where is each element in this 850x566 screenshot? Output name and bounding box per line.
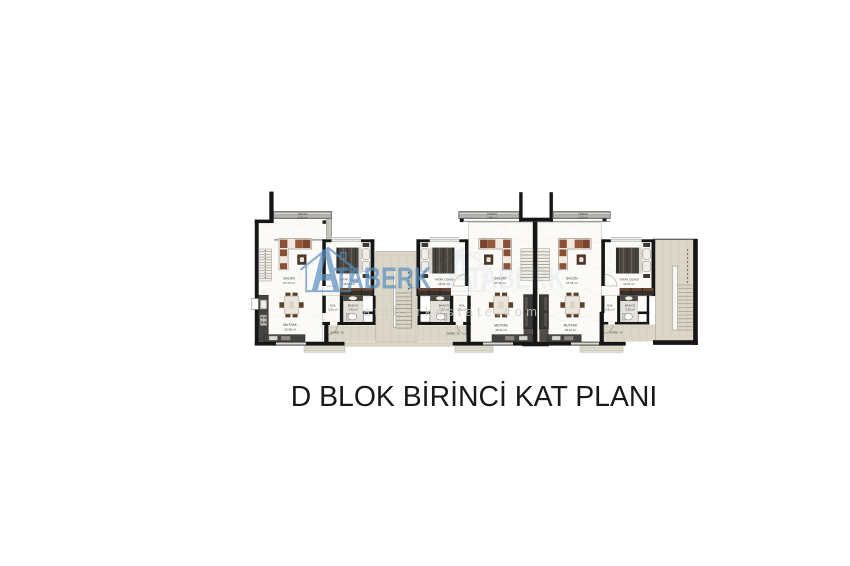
svg-text:MUTFAK: MUTFAK [564,324,578,328]
svg-text:2.61 m²: 2.61 m² [605,308,615,312]
svg-text:TABERK: TABERK [468,261,565,296]
svg-text:2.95 m²: 2.95 m² [578,215,588,219]
svg-text:18.38 m²: 18.38 m² [284,328,296,332]
svg-text:2.51 m²: 2.51 m² [328,308,338,312]
svg-text:27.34 m²: 27.34 m² [566,281,578,285]
svg-text:3.30 m²: 3.30 m² [625,308,635,312]
svg-text:27.74 m²: 27.74 m² [283,281,295,285]
svg-text:MUTFAK: MUTFAK [494,324,508,328]
svg-text:DAIRE: 31: DAIRE: 31 [446,332,460,336]
svg-text:SALON: SALON [566,277,578,281]
svg-text:DAIRE: 33: DAIRE: 33 [609,331,623,335]
svg-text:TABERK: TABERK [334,261,431,296]
svg-text:18.11 m²: 18.11 m² [565,328,577,332]
svg-text:12.01 m²: 12.01 m² [623,282,634,286]
svg-text:3.20 m²: 3.20 m² [298,215,308,219]
svg-text:18.11 m²: 18.11 m² [495,328,507,332]
svg-text:MUTFAK: MUTFAK [283,323,297,327]
svg-text:DAIRE: 30: DAIRE: 30 [330,331,344,335]
svg-text:3.32 m²: 3.32 m² [348,308,358,312]
svg-text:2.95 m²: 2.95 m² [487,215,497,219]
svg-text:D BLOK BİRİNCİ KAT PLANI: D BLOK BİRİNCİ KAT PLANI [291,381,658,413]
svg-text:ataberkestate.com: ataberkestate.com [363,304,541,319]
svg-text:SALON: SALON [283,277,295,281]
